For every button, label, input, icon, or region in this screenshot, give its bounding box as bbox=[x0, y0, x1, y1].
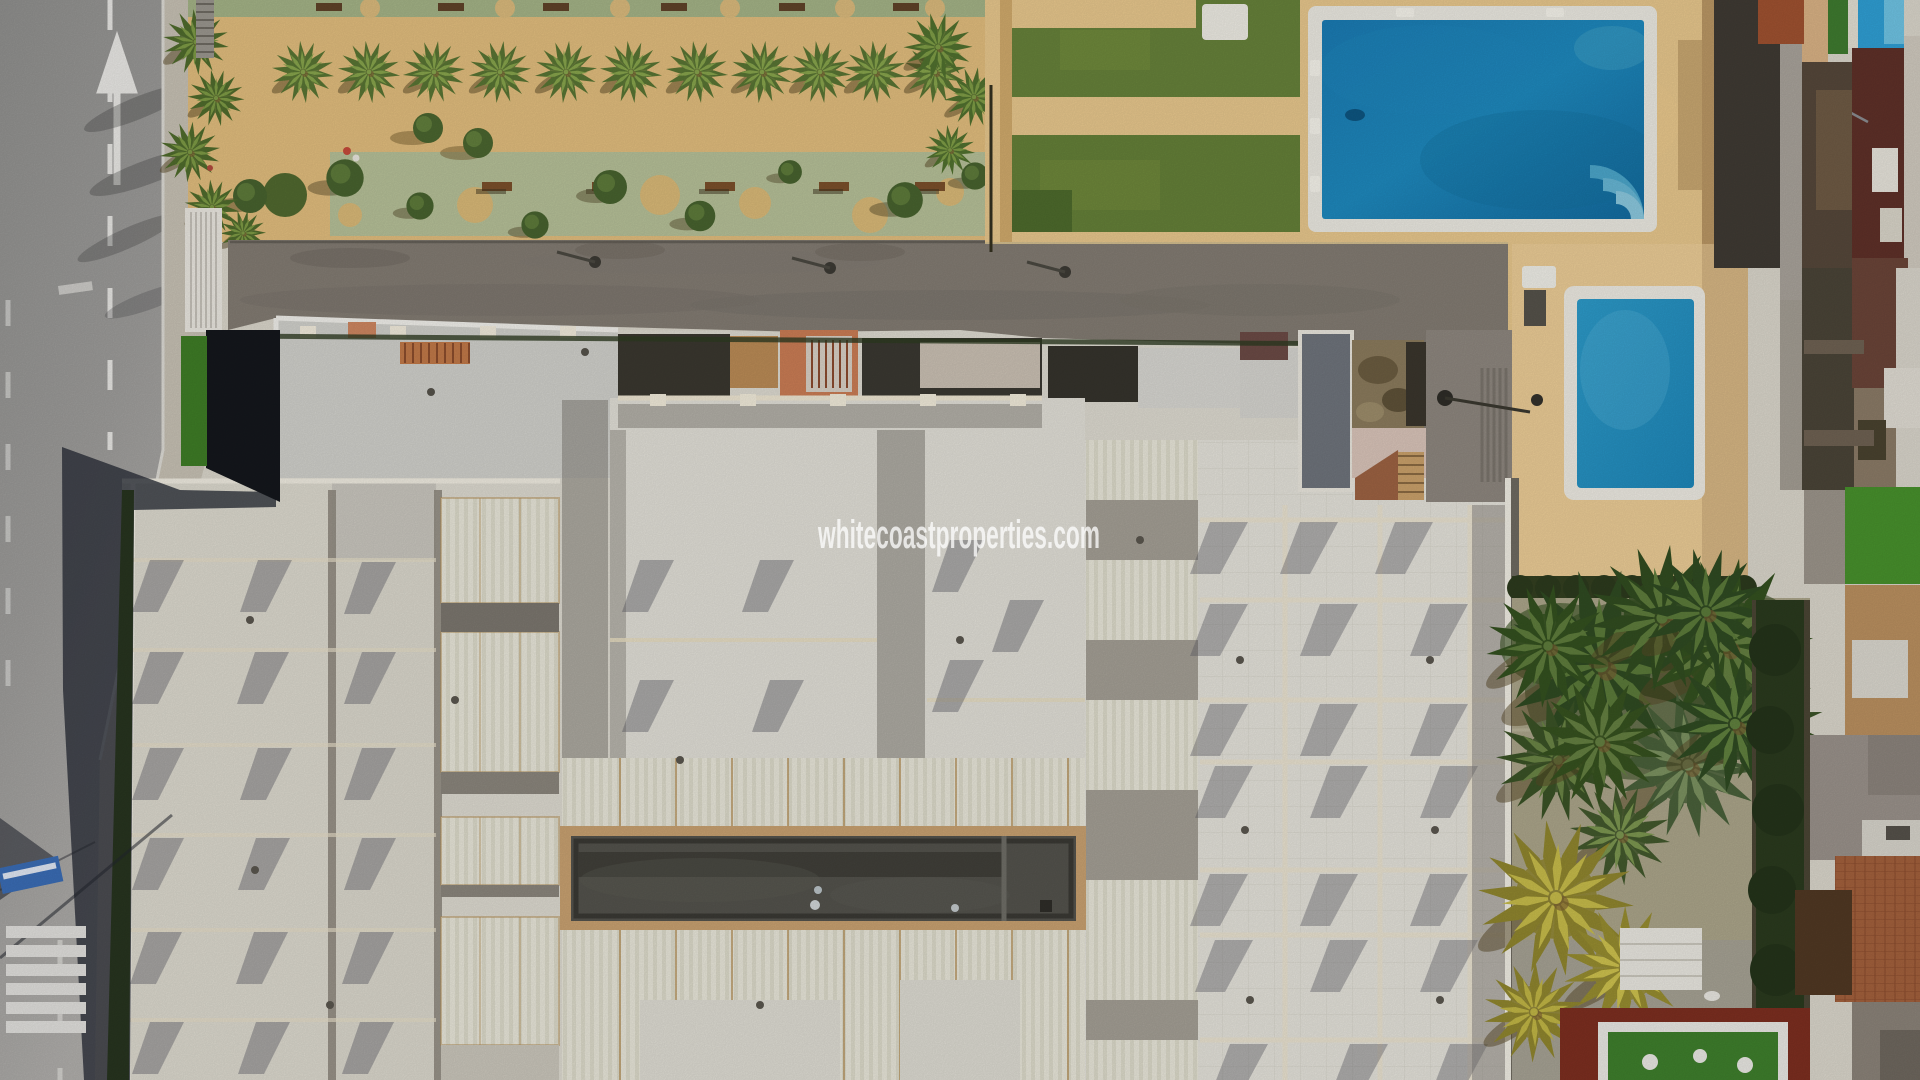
svg-text:whitecoastproperties.com: whitecoastproperties.com bbox=[817, 513, 1100, 557]
